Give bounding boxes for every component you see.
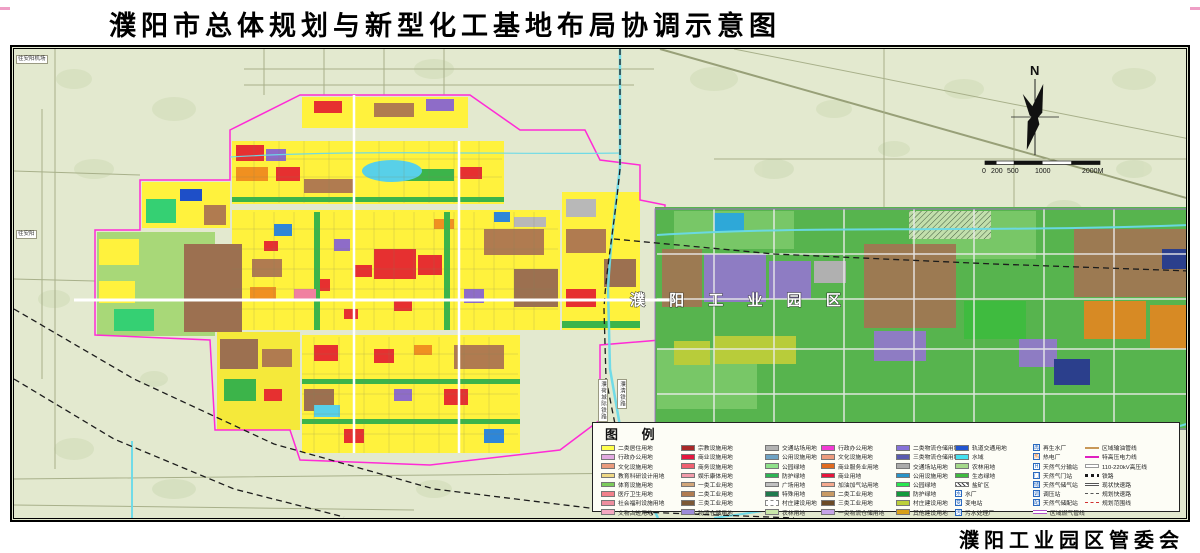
legend-label: 一类物流仓储用地 — [838, 511, 884, 517]
salt-mine-zone — [909, 211, 991, 239]
legend-item: 公园绿地 — [896, 476, 936, 484]
legend-item: 调调压站 — [1033, 485, 1060, 493]
legend-item: 区域输油管线 — [1085, 439, 1137, 447]
legend-label: 农林用地 — [782, 511, 805, 517]
legend-item: 一类工业用地 — [681, 476, 733, 484]
railway-label-line: 濮清铁路 — [617, 379, 627, 409]
legend-item: 三类工业用地 — [681, 494, 733, 502]
legend-item: 商业服务业用地 — [821, 457, 879, 465]
road-label-airport: 往安阳机场 — [16, 55, 48, 64]
map-canvas: 濮 阳 工 业 园 区 N 0 200 500 1000 2000M 往安阳机场… — [13, 48, 1187, 519]
legend-item: 配天然气储配站 — [1033, 494, 1078, 502]
legend-item: 公园绿地 — [765, 457, 805, 465]
legend-item: 三类物流仓储用地 — [896, 448, 959, 456]
legend-item: 防护绿地 — [896, 485, 936, 493]
legend-item: 污污水处理厂 — [955, 503, 994, 511]
legend-item: 规划快速路 — [1085, 485, 1131, 493]
legend-swatch-fill — [681, 509, 695, 515]
legend-item: 热热电厂 — [1033, 448, 1060, 456]
legend-item: 商业设施用地 — [681, 448, 733, 456]
scale-tick: 200 — [991, 168, 1003, 175]
legend-item: 农林用地 — [955, 457, 995, 465]
legend-label: 物流仓储用地 — [698, 511, 733, 517]
legend-item: 行政办公用地 — [601, 448, 653, 456]
legend-item: 广场用地 — [765, 476, 805, 484]
footer-bar: 濮阳工业园区管委会 — [0, 522, 1200, 552]
road-label-anyang: 往安阳 — [16, 230, 37, 239]
legend-item: 二类居住用地 — [601, 439, 653, 447]
legend-item: 医疗卫生用地 — [601, 485, 653, 493]
legend-item: 物流仓储用地 — [681, 503, 733, 511]
scale-tick: 2000M — [1082, 168, 1104, 175]
legend-swatch-icon: 污 — [955, 509, 962, 516]
legend-item: 文化设施用地 — [821, 448, 873, 456]
legend-swatch-dash — [1085, 502, 1099, 503]
legend-item: 水域 — [955, 448, 984, 456]
legend-item: 商业用地 — [821, 467, 861, 475]
legend-item: 文物古迹用地 — [601, 503, 653, 511]
legend-item: 宗教设施用地 — [681, 439, 733, 447]
agency-name: 濮阳工业园区管委会 — [959, 524, 1184, 553]
city-lake — [362, 160, 422, 182]
legend-swatch-fill — [601, 509, 615, 515]
legend-item: 村庄建设用地 — [896, 494, 948, 502]
legend-swatch-fill — [821, 509, 835, 515]
legend-item: 交通场站用地 — [896, 457, 948, 465]
legend-item: 轨道交通用地 — [955, 439, 1007, 447]
legend-item: 现状快速路 — [1085, 476, 1131, 484]
legend-item: 社会福利设施用地 — [601, 494, 664, 502]
industrial-park-area — [655, 207, 1186, 430]
legend-item: 区域燃气管线 — [1033, 503, 1085, 511]
legend-item: 文化设施用地 — [601, 457, 653, 465]
legend-swatch-line2 — [1033, 510, 1047, 514]
legend-item: 二类工业用地 — [681, 485, 733, 493]
railway-label-intercity: 濮荷城际铁路 — [598, 379, 608, 422]
legend-item: 商务设施用地 — [681, 457, 733, 465]
legend-item: 规划范围线 — [1085, 494, 1131, 502]
legend-item: 交通站场用地 — [765, 439, 817, 447]
legend-item: 其他建设用地 — [896, 503, 948, 511]
legend-item: 行政办公用地 — [821, 439, 873, 447]
corner-mark — [0, 7, 10, 10]
legend-item: 特殊用地 — [765, 485, 805, 493]
legend-label: 文物古迹用地 — [618, 511, 653, 517]
legend-item: 二类工业用地 — [821, 485, 873, 493]
legend-item: 水水厂 — [955, 485, 977, 493]
legend-item: 三类工业用地 — [821, 494, 873, 502]
page-title: 濮阳市总体规划与新型化工基地布局协调示意图 — [95, 4, 795, 43]
legend-label: 规划范围线 — [1102, 501, 1131, 507]
legend-item: 农林用地 — [765, 503, 805, 511]
legend-item: 盐矿区 — [955, 476, 989, 484]
map-frame: 濮 阳 工 业 园 区 N 0 200 500 1000 2000M 往安阳机场… — [10, 45, 1190, 522]
legend-item: H天然气分输站 — [1033, 457, 1078, 465]
legend-item: 二类物流仓储用地 — [896, 439, 959, 447]
legend-item: 门天然气门站 — [1033, 467, 1072, 475]
legend-label: 污水处理厂 — [965, 511, 994, 517]
legend-item: 生态绿地 — [955, 467, 995, 475]
legend-item: 储天然气储气站 — [1033, 476, 1078, 484]
park-name-label: 濮 阳 工 业 园 区 — [630, 291, 851, 309]
legend-item: 防护绿地 — [765, 467, 805, 475]
legend-item: 再再生水厂 — [1033, 439, 1066, 447]
legend-swatch-fill — [765, 509, 779, 515]
corner-mark — [1190, 7, 1200, 10]
legend-item: 公用设施用地 — [896, 467, 948, 475]
legend-item: 体育设施用地 — [601, 476, 653, 484]
legend-item: 铁路 — [1085, 467, 1114, 475]
legend-item: 一类物流仓储用地 — [821, 503, 884, 511]
legend-item: 加油加气站用地 — [821, 476, 879, 484]
legend-label: 其他建设用地 — [913, 511, 948, 517]
scale-bar: 0 200 500 1000 2000M — [982, 161, 1104, 175]
legend-box: 图 例 二类居住用地行政办公用地文化设施用地教育科研设计用地体育设施用地医疗卫生… — [592, 422, 1180, 512]
legend-item: 特高压电力线 — [1085, 448, 1137, 456]
legend-swatch-fill — [896, 509, 910, 515]
scale-tick: 500 — [1007, 168, 1019, 175]
legend-item: 村庄建设用地 — [765, 494, 817, 502]
legend-item: 公用设施用地 — [765, 448, 817, 456]
compass-north-label: N — [1030, 63, 1039, 78]
legend-item: 110-220kV高压线 — [1085, 457, 1147, 465]
legend-item: 娱乐康体用地 — [681, 467, 733, 475]
legend-item: 教育科研设计用地 — [601, 467, 664, 475]
legend-item: 变变电站 — [955, 494, 982, 502]
scale-tick: 0 — [982, 168, 986, 175]
legend-label: 区域燃气管线 — [1050, 511, 1085, 517]
scale-tick: 1000 — [1035, 168, 1051, 175]
